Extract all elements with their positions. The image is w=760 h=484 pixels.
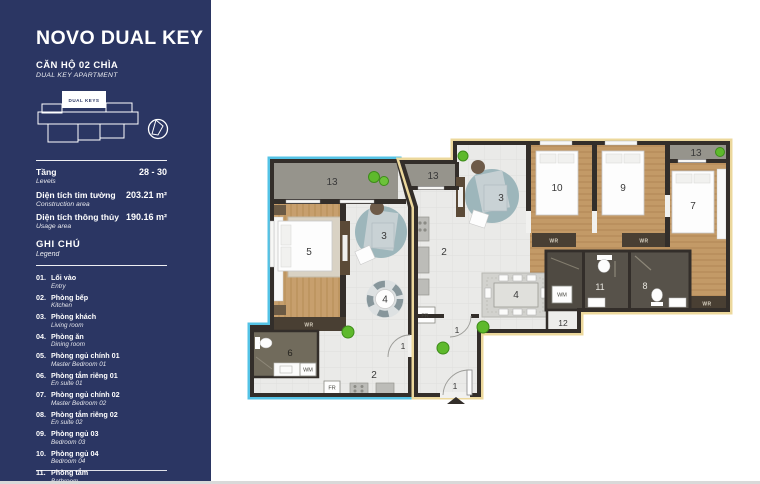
north-arrow-icon [149, 120, 168, 139]
room-label-kitchen: 2 [371, 370, 377, 381]
room-label-living: 3 [381, 231, 387, 242]
legend-vi: Phòng tắm riêng 01 [51, 371, 118, 380]
legend-vi: Phòng bếp [51, 293, 88, 302]
plant-icon [342, 326, 354, 338]
room-label-bedroom-10: 10 [551, 183, 563, 194]
legend-vi: Phòng ngủ 04 [51, 449, 99, 458]
room-label-dining: 4 [513, 290, 519, 301]
stat-value: 28 - 30 [139, 167, 167, 177]
legend-item: 01.Lối vàoEntry [36, 273, 168, 290]
room-label-entry: 1 [453, 381, 458, 391]
plant-icon [437, 342, 449, 354]
subtitle-vietnamese: CĂN HỘ 02 CHÌA [36, 60, 168, 71]
legend-en: Master Bedroom 01 [51, 361, 120, 368]
legend-number: 01. [36, 273, 51, 290]
building-footprint-diagram: DUAL KEYS [36, 90, 168, 153]
divider [36, 470, 167, 471]
door-opening [665, 195, 670, 217]
window [270, 221, 274, 267]
room-label-bath-8: 8 [642, 281, 647, 291]
subtitle-english: DUAL KEY APARTMENT [36, 72, 168, 79]
washer-tag: WM [303, 368, 313, 374]
window [540, 141, 572, 145]
room-label-entry: 1 [455, 325, 460, 335]
legend-en: Living room [51, 322, 96, 329]
window [605, 141, 637, 145]
room-label-bath-11: 11 [595, 282, 604, 292]
brochure-page: NOVO DUAL KEY CĂN HỘ 02 CHÌA DUAL KEY AP… [0, 0, 760, 484]
room-label-storage: 12 [558, 318, 568, 328]
stat-label-en: Usage area [36, 223, 119, 230]
stat-label-vi: Tầng [36, 167, 57, 177]
unit-a: 13 5 3 4 2 6 1 WR FR WM [252, 161, 412, 395]
legend-number: 02. [36, 293, 51, 310]
legend-item: 04.Phòng ănDining room [36, 332, 168, 349]
door-opening [408, 335, 412, 357]
toilet-icon [652, 289, 663, 302]
wall [340, 204, 346, 221]
plant-icon [477, 321, 489, 333]
wardrobe-tag: WR [304, 323, 313, 329]
legend-vi: Phòng ngủ 03 [51, 429, 99, 438]
wardrobe-tag: WR [549, 239, 558, 245]
window [418, 187, 444, 190]
legend-number: 03. [36, 312, 51, 329]
stat-value: 203.21 m² [126, 190, 167, 200]
nightstand [274, 205, 286, 215]
pillow [281, 225, 291, 245]
room-label-dining: 4 [382, 295, 388, 306]
stat-label-en: Construction area [36, 201, 116, 208]
floorplate-outline [38, 103, 138, 142]
sidebar: NOVO DUAL KEY CĂN HỘ 02 CHÌA DUAL KEY AP… [0, 0, 211, 481]
legend-vi: Phòng ngủ chính 02 [51, 390, 120, 399]
legend-vi: Phòng ngủ chính 01 [51, 351, 120, 360]
legend-en: Entry [51, 283, 76, 290]
door-opening [526, 211, 531, 233]
stat-label-vi: Diện tích thông thủy [36, 212, 119, 222]
room-label-balcony: 13 [690, 148, 702, 159]
plant-icon [369, 172, 380, 183]
stat-levels: Tầng Levels 28 - 30 [36, 167, 167, 185]
stat-label-vi: Diện tích tim tường [36, 190, 116, 200]
legend-item: 06.Phòng tắm riêng 01En suite 01 [36, 371, 168, 388]
legend-item: 09.Phòng ngủ 03Bedroom 03 [36, 429, 168, 446]
wardrobe-tag: WR [702, 302, 711, 308]
sink [588, 298, 605, 307]
dual-keys-label: DUAL KEYS [69, 98, 100, 103]
tv [343, 235, 348, 261]
window [678, 160, 706, 163]
legend-number: 04. [36, 332, 51, 349]
stat-usage-area: Diện tích thông thủy Usage area 190.16 m… [36, 212, 167, 230]
room-label-bedroom-9: 9 [620, 183, 626, 194]
legend-number: 09. [36, 429, 51, 446]
legend-number: 10. [36, 449, 51, 466]
wall [340, 275, 346, 317]
fridge-tag: FR [328, 386, 335, 392]
wall [416, 314, 444, 318]
room-label-balcony: 13 [427, 171, 439, 182]
legend-vi: Phòng tắm riêng 02 [51, 410, 118, 419]
unit-b: 13 13 3 2 10 9 7 4 11 8 12 1 1 WR WR WR … [402, 141, 728, 404]
legend-item: 03.Phòng kháchLiving room [36, 312, 168, 329]
page-title: NOVO DUAL KEY [36, 27, 168, 50]
legend-en: En suite 02 [51, 419, 118, 426]
window [286, 200, 320, 203]
divider [36, 265, 167, 266]
wardrobe-tag: WR [639, 239, 648, 245]
legend-item: 07.Phòng ngủ chính 02Master Bedroom 02 [36, 390, 168, 407]
sink [669, 298, 686, 307]
toilet-icon [260, 338, 272, 348]
legend-en: Bedroom 03 [51, 439, 99, 446]
plant-icon [458, 151, 468, 161]
legend-en: Kitchen [51, 302, 88, 309]
window [340, 200, 374, 203]
washer-tag: WM [557, 293, 567, 299]
room-label-bedroom-7: 7 [690, 201, 696, 212]
dual-keys-highlight: DUAL KEYS [62, 91, 106, 108]
fridge-tag: FR [421, 314, 428, 320]
legend-en: Bedroom 04 [51, 458, 99, 465]
nightstand [274, 305, 286, 315]
legend-number: 06. [36, 371, 51, 388]
legend-list: 01.Lối vàoEntry 02.Phòng bếpKitchen 03.P… [36, 273, 168, 484]
door-opening [440, 392, 470, 398]
bath-cluster [546, 251, 690, 310]
stat-value: 190.16 m² [126, 212, 167, 222]
toilet-icon [597, 255, 612, 260]
plant-icon [380, 177, 389, 186]
legend-item: 02.Phòng bếpKitchen [36, 293, 168, 310]
room-label-living: 3 [498, 193, 504, 204]
legend-number: 05. [36, 351, 51, 368]
stats-section: Tầng Levels 28 - 30 Diện tích tim tường … [36, 167, 168, 230]
bed [672, 169, 726, 239]
legend-item: 08.Phòng tắm riêng 02En suite 02 [36, 410, 168, 427]
plant-icon [716, 148, 725, 157]
legend-item: 05.Phòng ngủ chính 01Master Bedroom 01 [36, 351, 168, 368]
legend-number: 07. [36, 390, 51, 407]
wall [471, 314, 479, 318]
floor-plan: 13 5 3 4 2 6 1 WR FR WM [228, 95, 760, 425]
legend-en: Master Bedroom 02 [51, 400, 120, 407]
room-label-bedroom-5: 5 [306, 247, 312, 258]
legend-title-en: Legend [36, 251, 168, 258]
legend-number: 08. [36, 410, 51, 427]
room-label-entry: 1 [401, 341, 406, 351]
stat-construction-area: Diện tích tim tường Construction area 20… [36, 190, 167, 208]
legend-en: Dining room [51, 341, 85, 348]
legend-vi: Phòng ăn [51, 332, 85, 341]
legend-en: En suite 01 [51, 380, 118, 387]
pillow [281, 247, 291, 267]
legend-vi: Lối vào [51, 273, 76, 282]
legend-item: 10.Phòng ngủ 04Bedroom 04 [36, 449, 168, 466]
room-label-corridor: 2 [441, 247, 447, 258]
stat-label-en: Levels [36, 178, 57, 185]
divider [36, 160, 167, 161]
room-label-balcony: 13 [326, 177, 338, 188]
legend-title-vi: GHI CHÚ [36, 239, 168, 250]
legend-vi: Phòng khách [51, 312, 96, 321]
door-leaf [467, 370, 472, 395]
door-opening [592, 211, 597, 233]
room-label-bath-6: 6 [287, 348, 292, 359]
